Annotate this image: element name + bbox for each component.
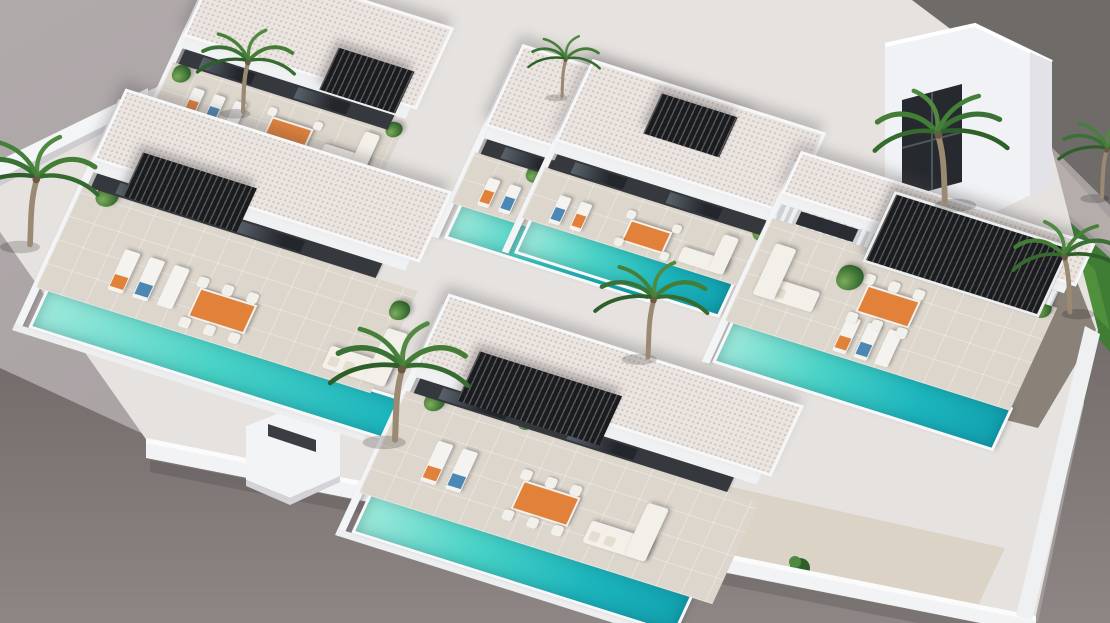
vegetation-layer <box>0 0 1110 623</box>
palm-tree <box>0 137 98 253</box>
palm-tree <box>528 36 599 101</box>
palm-tree <box>197 30 294 118</box>
render-canvas <box>0 0 1110 623</box>
palm-tree <box>330 324 468 450</box>
palm-tree <box>875 91 1008 212</box>
palm-tree <box>1059 119 1110 203</box>
palm-tree <box>595 263 707 365</box>
palm-tree <box>1013 222 1110 320</box>
